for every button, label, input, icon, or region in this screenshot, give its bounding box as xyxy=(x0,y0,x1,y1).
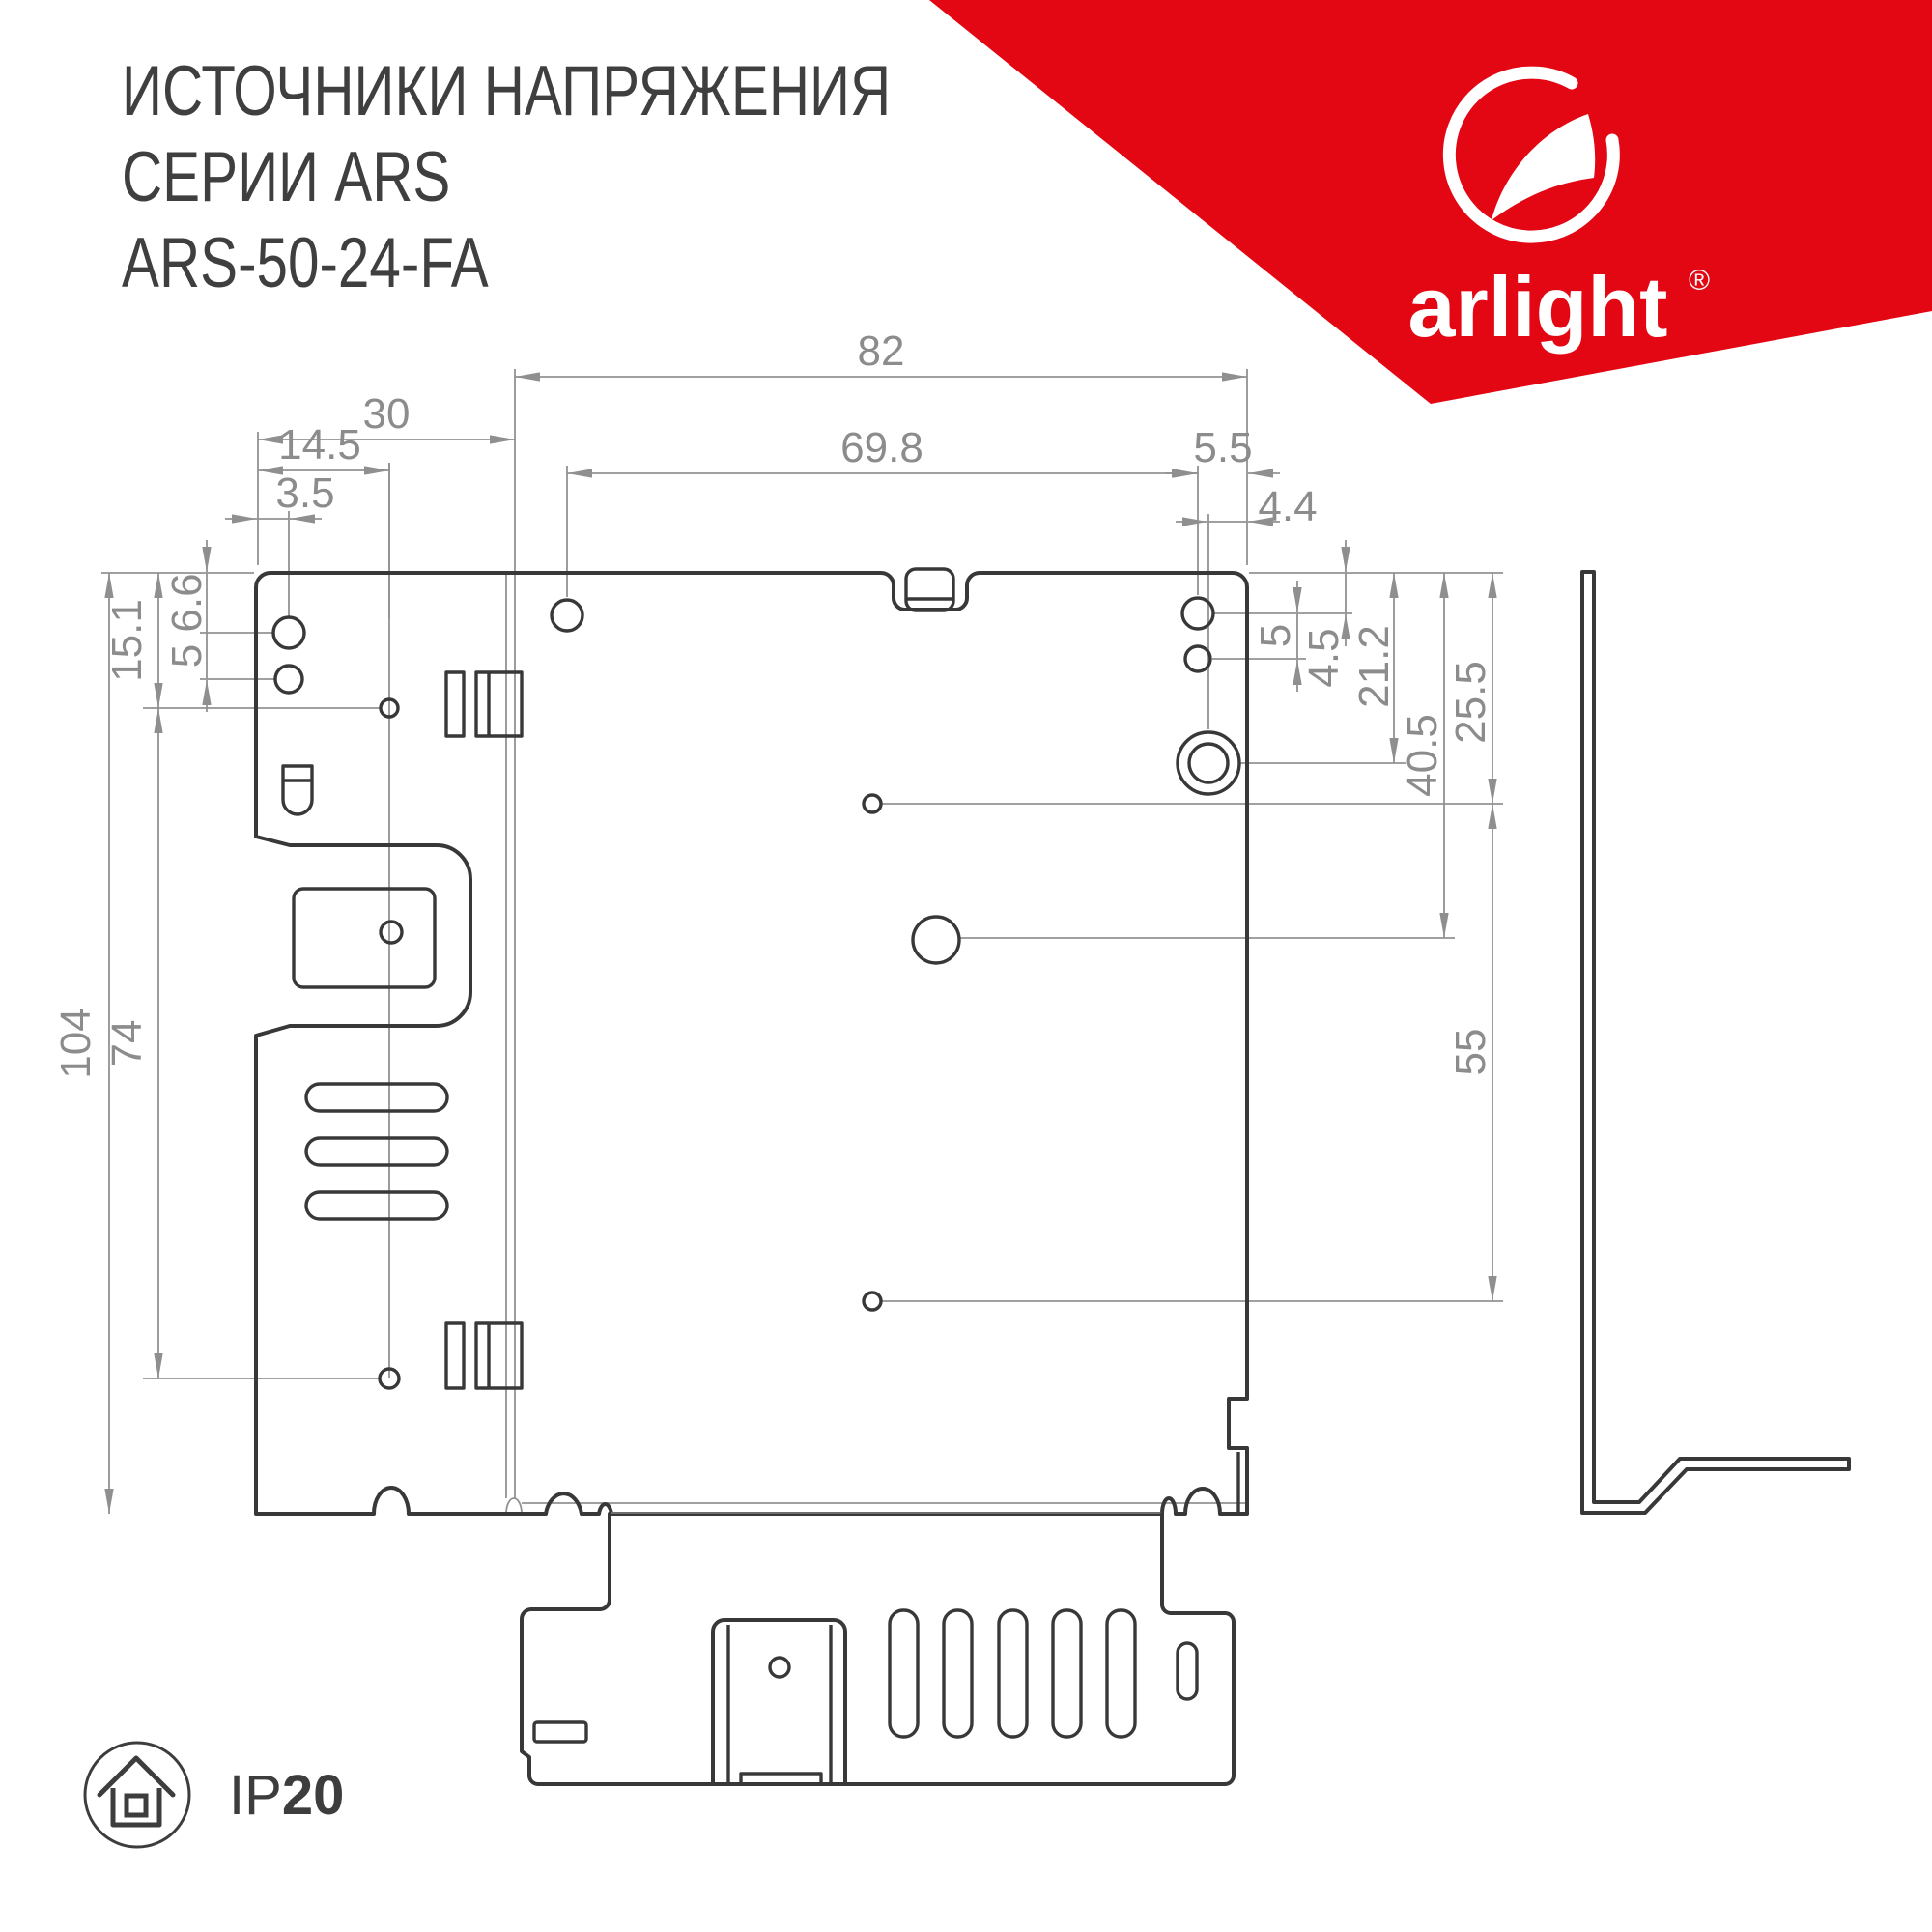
dim-flange-hole-span: 74 xyxy=(103,1020,151,1067)
dimension-lines xyxy=(109,377,1492,1514)
dim-low-hole-span: 55 xyxy=(1447,1029,1494,1076)
cable-tab xyxy=(906,569,953,611)
connector-inner xyxy=(294,889,435,987)
side-view xyxy=(1582,572,1849,1513)
dim-corner-hole-inset: 3.5 xyxy=(275,469,334,517)
case-hole-top-left xyxy=(552,600,582,631)
side-view-outline xyxy=(1582,572,1849,1513)
edge-slots xyxy=(446,672,522,1388)
front-view-outline xyxy=(522,1514,1234,1784)
dim-top-hole-down: 6.6 xyxy=(163,573,211,632)
dim-overall-height: 104 xyxy=(52,1008,99,1078)
dim-big-hole-down: 40.5 xyxy=(1399,714,1446,797)
extension-lines xyxy=(101,369,1503,1514)
dim-flange-hole-x: 14.5 xyxy=(278,421,361,469)
top-view-vents xyxy=(306,1084,447,1219)
dim-boss-down: 21.2 xyxy=(1350,625,1398,708)
pcb-hole-big xyxy=(913,917,959,963)
boss-inner xyxy=(1189,744,1228,782)
dim-right-top-offset: 4.5 xyxy=(1300,628,1348,687)
dim-mid-hole-down: 25.5 xyxy=(1447,661,1494,744)
front-view xyxy=(522,1513,1234,1784)
connector-screw xyxy=(381,922,402,943)
flange-hole-top-1 xyxy=(273,617,304,648)
dim-right-hole-inset: 5.5 xyxy=(1193,424,1252,471)
label-cutout xyxy=(534,1722,586,1742)
ip-prefix: IP xyxy=(229,1764,282,1827)
flange-hole-top-2 xyxy=(275,666,302,693)
dim-overall-width: 82 xyxy=(858,327,905,375)
pcb-hole-low xyxy=(864,1293,881,1310)
dim-flange-hole-top: 15.1 xyxy=(103,599,151,682)
dim-left-hole-pitch: 5 xyxy=(163,644,211,668)
dim-flange-width: 30 xyxy=(363,390,411,438)
top-view xyxy=(256,569,1247,1514)
front-connector-screw xyxy=(770,1658,789,1677)
datasheet-page: arlight ® ИСТОЧНИКИ НАПРЯЖЕНИЯ СЕРИИ ARS… xyxy=(0,0,1932,1932)
dim-boss-inset: 4.4 xyxy=(1258,483,1317,530)
indoor-use-icon xyxy=(85,1743,189,1847)
dim-right-hole-pitch: 5 xyxy=(1252,624,1299,647)
front-small-slot xyxy=(1178,1643,1197,1699)
dimension-drawing: 82 30 14.5 3.5 69.8 5.5 4.4 104 74 15.1 … xyxy=(0,0,1932,1932)
ip-rating-text: IP20 xyxy=(229,1764,344,1827)
front-connector xyxy=(713,1620,845,1784)
d-cutout xyxy=(283,766,312,814)
pcb-hole-mid xyxy=(864,795,881,812)
ip-value: 20 xyxy=(282,1764,345,1827)
top-view-outline xyxy=(256,573,1247,1514)
case-hole-top-right-2 xyxy=(1185,646,1210,671)
dim-top-hole-span: 69.8 xyxy=(840,424,923,471)
ip-rating-badge: IP20 xyxy=(0,1700,483,1932)
boss-outer xyxy=(1178,732,1239,794)
front-view-vents xyxy=(890,1610,1135,1737)
